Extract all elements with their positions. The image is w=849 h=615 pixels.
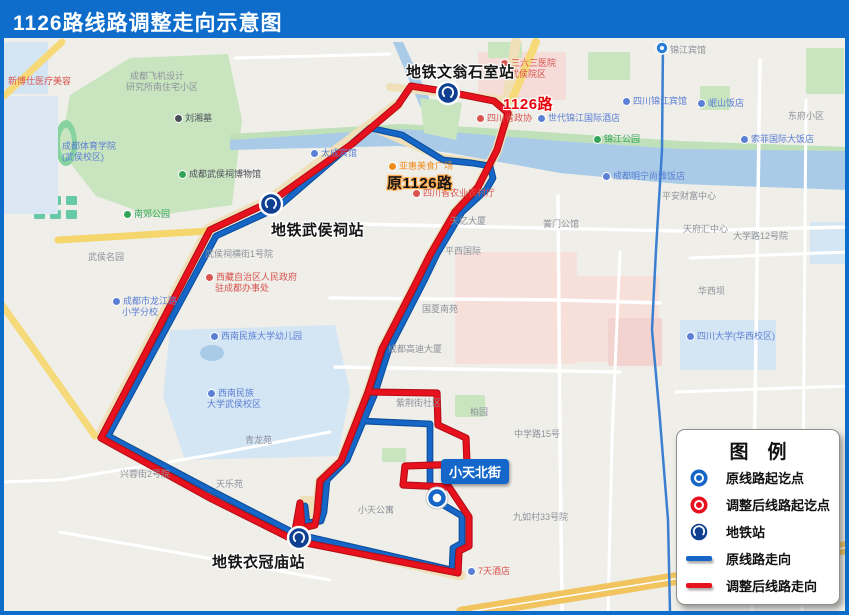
legend-item: 调整后线路走向	[677, 572, 839, 599]
original-route-terminal-icon	[426, 487, 448, 509]
legend-line-blue-icon	[686, 556, 712, 561]
campus-area	[4, 96, 58, 214]
legend-item-label: 原线路走向	[726, 549, 791, 568]
legend-item: 调整后线路起讫点	[677, 491, 839, 518]
park-patch	[700, 86, 730, 110]
metro-yiguanmiao-station-icon	[288, 527, 310, 549]
park-patch	[588, 52, 630, 80]
metro-jinjiang-hotel-station-icon	[656, 42, 668, 54]
legend-item-label: 地铁站	[726, 522, 765, 541]
metro-glyph-dot	[660, 46, 664, 50]
metro-yiguanmiao-station-icon	[288, 527, 310, 549]
legend-line-red-icon	[686, 583, 712, 588]
stadium-field	[60, 128, 72, 158]
original-route-terminal-icon	[431, 492, 444, 505]
metro-wenwengshishi-station-icon	[437, 82, 459, 104]
park-patch	[382, 448, 406, 462]
metro-wuhouci-station-icon	[260, 193, 282, 215]
metro-wuhouci-station-icon	[260, 193, 282, 215]
legend-box: 图 例 原线路起讫点调整后线路起讫点地铁站原线路走向调整后线路走向	[676, 429, 840, 605]
metro-glyph-dot	[450, 96, 452, 98]
metro-glyph-dot	[273, 207, 275, 209]
legend-title: 图 例	[677, 437, 839, 464]
legend-item-label: 调整后线路起讫点	[726, 495, 830, 514]
legend-item-label: 调整后线路走向	[726, 576, 817, 595]
sports-court	[66, 210, 77, 219]
title-bar: 1126路线路调整走向示意图	[0, 0, 849, 38]
legend-item: 原线路走向	[677, 545, 839, 572]
metro-glyph-dot	[301, 541, 303, 543]
legend-item: 原线路起讫点	[677, 464, 839, 491]
legend-dot-blue-icon	[686, 473, 712, 483]
pond	[200, 345, 224, 361]
legend-dot-red-icon	[686, 500, 712, 510]
legend-metro-icon	[686, 521, 712, 543]
park-patch	[455, 395, 485, 417]
route-map-frame: 1126路线路调整走向示意图 三六三医院武侯院区四川省政协世代锦江国际酒店锦江宾…	[0, 0, 849, 615]
park-patch	[806, 48, 844, 94]
campus-minzu-univ	[163, 325, 350, 460]
campus-huaxi	[680, 320, 776, 370]
page-title: 1126路线路调整走向示意图	[0, 0, 849, 37]
legend-item-label: 原线路起讫点	[726, 468, 804, 487]
metro-wenwengshishi-station-icon	[437, 82, 459, 104]
street	[0, 480, 58, 482]
sports-court	[66, 196, 77, 205]
legend-item: 地铁站	[677, 518, 839, 545]
